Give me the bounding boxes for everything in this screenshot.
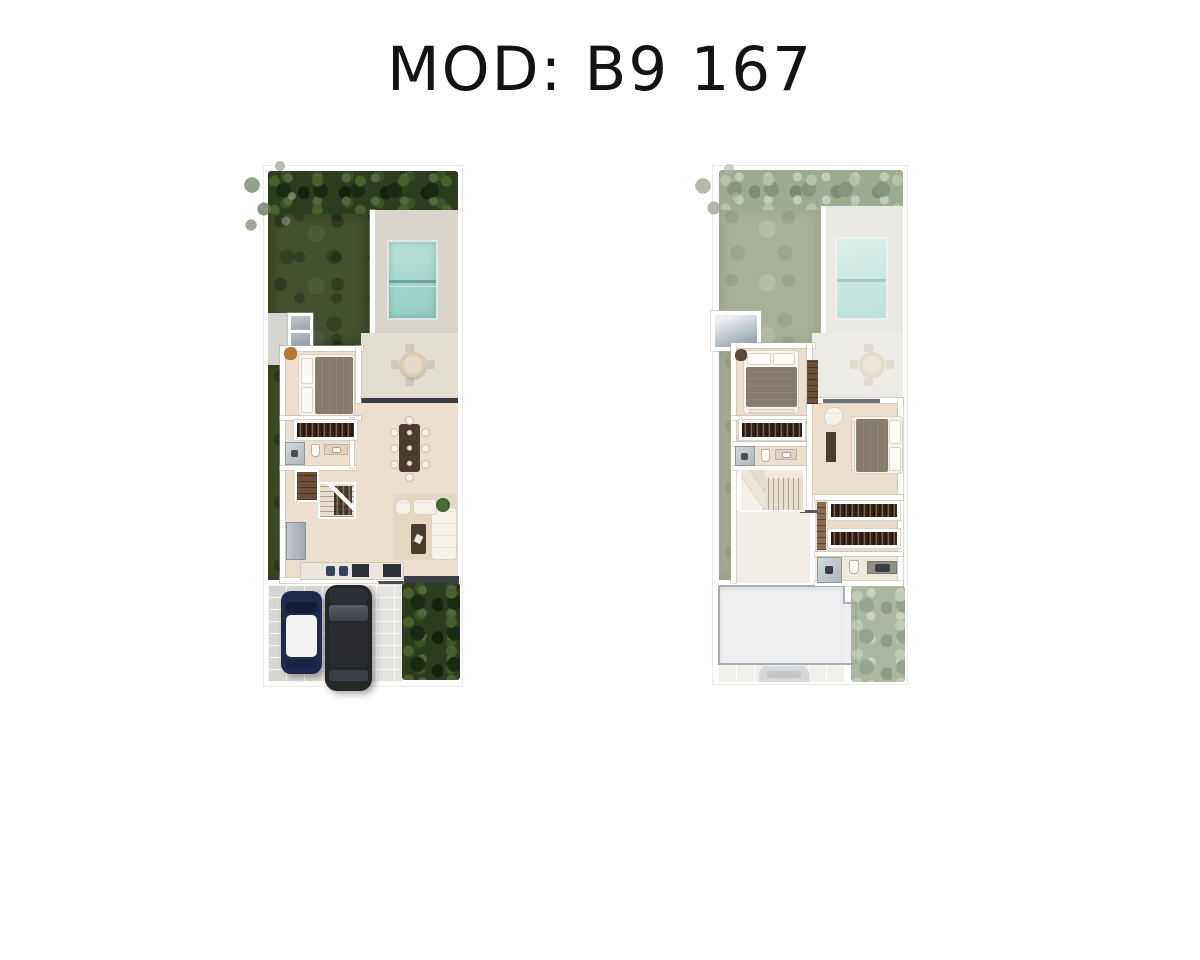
tree-canopy-icon	[232, 150, 318, 246]
patio-table-top-faded	[859, 352, 885, 378]
car-windshield	[286, 602, 317, 613]
bedroom2-bed	[743, 350, 799, 414]
cooktop	[352, 564, 369, 577]
sofa	[431, 507, 457, 560]
potted-plant-icon	[436, 498, 450, 512]
master-bed	[851, 416, 903, 474]
car-compact-navy	[281, 591, 322, 674]
shower-drain	[741, 453, 748, 460]
swimming-pool	[387, 240, 438, 320]
kitchen-sink	[383, 564, 401, 577]
shower	[285, 442, 305, 465]
hedge	[402, 583, 460, 680]
roof-seam-patch	[843, 604, 846, 663]
car-faded	[759, 666, 809, 682]
shower-drain	[291, 450, 298, 457]
bed-pillow	[889, 447, 901, 471]
dining-chair	[421, 428, 430, 437]
armchair	[395, 499, 411, 515]
dining-chair	[405, 416, 414, 425]
roof-slab	[718, 585, 845, 665]
bed-pillow	[773, 353, 795, 365]
patio-chair	[427, 360, 435, 369]
pool-faded	[835, 237, 888, 320]
master-window-sill	[823, 399, 880, 403]
pool-step-line	[389, 280, 436, 283]
patio-table-set	[388, 340, 438, 390]
floorplan-sheet: MOD: B9 167	[0, 0, 1200, 960]
bed-duvet	[746, 367, 797, 407]
suv-rear-window	[329, 670, 368, 681]
coffee-table	[411, 524, 426, 554]
closet2-rack	[739, 420, 805, 440]
sink	[782, 452, 791, 458]
wardrobe	[807, 360, 818, 404]
toilet-2	[761, 449, 770, 462]
walkin-clothes-b	[831, 532, 897, 545]
walkin-rack-a	[828, 501, 900, 520]
master-vanity	[867, 561, 897, 574]
staircase-upper	[741, 470, 803, 510]
sink	[332, 447, 341, 453]
closet-rack	[294, 420, 357, 440]
bed-pillow	[747, 353, 771, 365]
wall-segment	[807, 398, 812, 510]
tree-canopy-faded-icon	[683, 152, 763, 242]
bar-stool	[326, 566, 335, 576]
master-sink	[875, 564, 890, 572]
bed-bench	[851, 421, 855, 471]
wall-segment	[356, 346, 361, 403]
patio-chair	[405, 378, 414, 386]
bed-duvet	[315, 357, 353, 414]
walkway	[372, 585, 402, 682]
master-toilet	[849, 560, 859, 574]
porch-step	[291, 333, 310, 347]
wall-segment	[280, 466, 356, 470]
master-console	[826, 432, 836, 462]
dining-chair	[421, 460, 430, 469]
stair-winder	[741, 470, 765, 510]
pool-step-line-faded	[837, 279, 886, 282]
car-roof	[286, 615, 317, 657]
sofa-section	[413, 499, 437, 515]
closet-clothes	[297, 423, 354, 437]
suv-roof	[329, 623, 368, 667]
master-shower	[817, 557, 842, 583]
shower-head-icon	[825, 566, 833, 574]
bed-bench	[749, 409, 794, 413]
dining-chair	[390, 428, 399, 437]
master-armchair	[824, 407, 843, 426]
stair-treads	[763, 478, 803, 510]
toilet	[311, 444, 320, 457]
patio-chair-faded	[850, 360, 858, 369]
stair-rail	[318, 482, 356, 519]
dining-chair	[421, 444, 430, 453]
patio-chair-faded	[886, 360, 894, 369]
dining-table	[399, 424, 420, 472]
patio-chair	[391, 360, 399, 369]
pool-step-line-2	[389, 286, 436, 287]
coffee-table-book	[414, 534, 424, 544]
ground-floor-plan	[264, 166, 462, 686]
hallway-floor	[733, 510, 810, 583]
car-faded-windshield	[767, 671, 801, 678]
suv-hood	[329, 588, 368, 604]
bedroom-accent-chair	[284, 347, 297, 360]
vanity-2	[775, 449, 797, 460]
patio-chair-faded	[864, 344, 873, 352]
pantry-shelves	[297, 472, 317, 500]
bedroom2-chair	[735, 349, 747, 361]
porch-step	[291, 316, 310, 330]
walkin-rack-b	[828, 529, 900, 548]
wall-segment	[815, 552, 903, 556]
dining-chair	[405, 473, 414, 482]
wall-segment	[815, 495, 903, 500]
vanity	[324, 444, 348, 455]
staircase	[320, 484, 354, 517]
living-window	[404, 576, 459, 583]
patio-table	[400, 352, 426, 378]
walkin-clothes-a	[831, 504, 897, 517]
upper-floor-plan	[713, 166, 907, 684]
kitchen-tall-unit	[286, 522, 306, 560]
bar-stool	[339, 566, 348, 576]
wall-segment	[731, 343, 815, 348]
walkin-side-shelf	[817, 502, 826, 550]
bed-duvet	[856, 419, 888, 472]
closet2-clothes	[742, 423, 802, 437]
car-suv-black	[325, 585, 372, 691]
bedroom-bed	[298, 354, 355, 416]
tree-faded	[851, 586, 905, 682]
car-rear-window	[286, 660, 317, 668]
page-title: MOD: B9 167	[0, 34, 1200, 105]
patio-chair	[405, 344, 414, 352]
bed-pillow	[301, 358, 313, 384]
dining-chair	[390, 444, 399, 453]
hall-threshold	[800, 510, 817, 513]
patio-table-faded	[847, 340, 897, 390]
suv-windshield	[329, 605, 368, 621]
dining-chair	[390, 460, 399, 469]
bed-pillow	[889, 420, 901, 444]
shower-2	[735, 446, 755, 466]
patio-chair-faded	[864, 378, 873, 386]
bed-pillow	[301, 387, 313, 413]
